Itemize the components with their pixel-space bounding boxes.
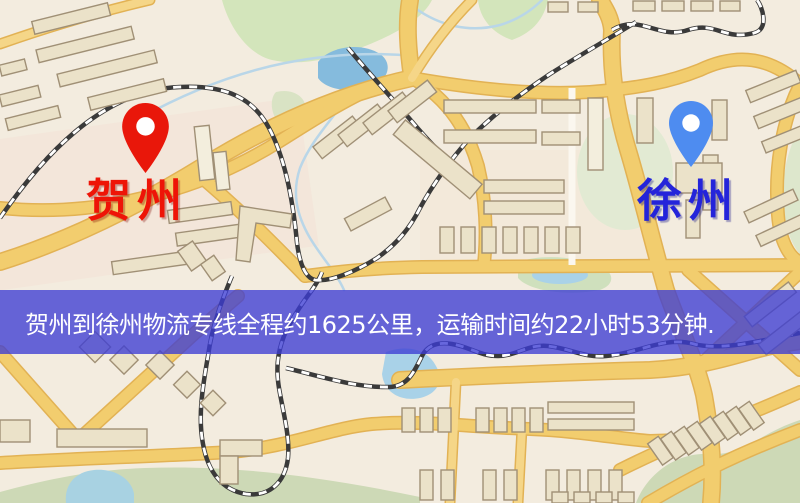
origin-city-label: 贺州	[86, 178, 188, 223]
map-canvas[interactable]: 贺州 徐州 贺州到徐州物流专线全程约1625公里，运输时间约22小时53分钟.	[0, 0, 800, 503]
origin-pin-icon[interactable]	[122, 103, 169, 173]
destination-pin-icon[interactable]	[668, 101, 714, 167]
basemap	[0, 0, 800, 503]
destination-city-label: 徐州	[637, 178, 739, 223]
route-info-banner: 贺州到徐州物流专线全程约1625公里，运输时间约22小时53分钟.	[0, 290, 800, 354]
route-info-text: 贺州到徐州物流专线全程约1625公里，运输时间约22小时53分钟.	[0, 305, 714, 340]
